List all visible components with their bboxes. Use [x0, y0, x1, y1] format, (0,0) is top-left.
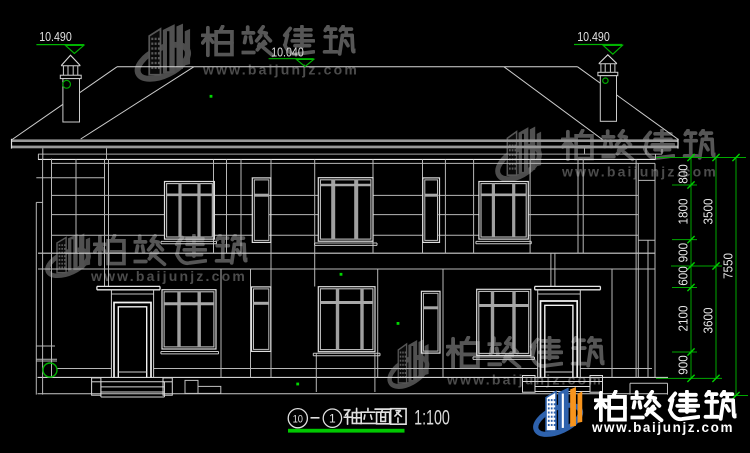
svg-text:600: 600	[676, 266, 691, 286]
svg-text:1: 1	[329, 412, 336, 426]
svg-text:2100: 2100	[676, 305, 691, 331]
svg-text:www.baijunjz.com: www.baijunjz.com	[202, 62, 359, 78]
svg-text:10: 10	[293, 414, 304, 426]
svg-text:900: 900	[676, 355, 691, 375]
svg-text:www.baijunjz.com: www.baijunjz.com	[90, 268, 247, 284]
svg-text:900: 900	[676, 243, 691, 263]
svg-text:1800: 1800	[676, 198, 691, 224]
svg-text:www.baijunjz.com: www.baijunjz.com	[561, 164, 718, 180]
svg-text:10.490: 10.490	[577, 29, 610, 44]
svg-text:10.490: 10.490	[39, 29, 72, 44]
svg-text:10.040: 10.040	[271, 44, 304, 59]
svg-text:7550: 7550	[721, 253, 736, 279]
svg-text:800: 800	[676, 164, 691, 184]
svg-text:1:100: 1:100	[414, 406, 450, 429]
svg-text:3600: 3600	[701, 307, 716, 333]
svg-text:www.baijunjz.com: www.baijunjz.com	[446, 372, 603, 388]
svg-text:www.baijunjz.com: www.baijunjz.com	[591, 420, 734, 435]
svg-text:3500: 3500	[701, 198, 716, 224]
